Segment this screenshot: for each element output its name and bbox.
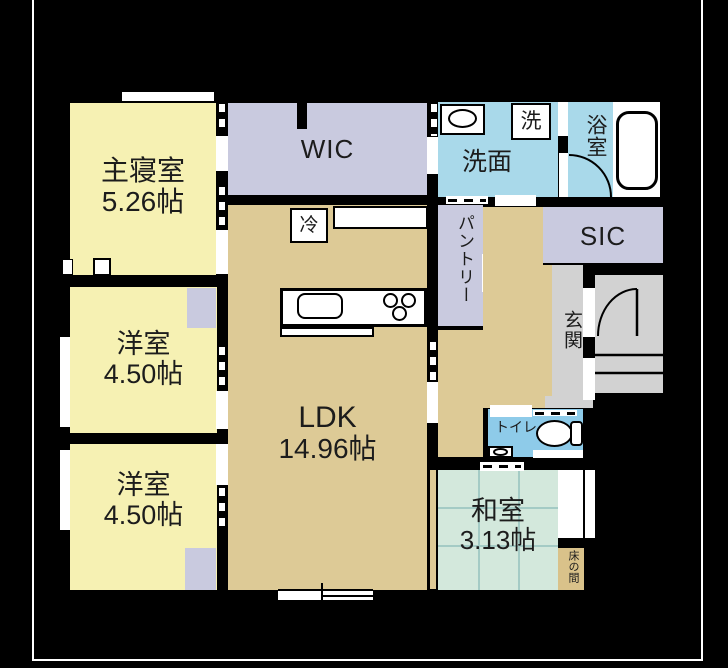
toilet-bowl xyxy=(536,420,573,447)
slide-door-toilet-dashes xyxy=(535,412,575,415)
master-bedroom-size: 5.26帖 xyxy=(70,186,216,217)
tokonoma-label: 床の間 xyxy=(565,550,581,583)
closet-western-1 xyxy=(187,288,216,328)
toilet-label: トイレ xyxy=(495,420,537,436)
door-western-1 xyxy=(216,391,228,429)
room-pantry: パントリー xyxy=(438,205,483,326)
kitchen-sink xyxy=(297,293,343,319)
window-ldk-bottom xyxy=(278,589,373,602)
frame-right-line xyxy=(701,0,703,661)
master-bedroom-name: 主寝室 xyxy=(70,155,216,186)
western-2-name: 洋室 xyxy=(70,470,217,500)
japanese-room-size: 3.13帖 xyxy=(438,526,558,555)
toilet-tank xyxy=(570,421,583,446)
opening-master-wic xyxy=(219,104,225,134)
stove-burner-3 xyxy=(392,306,407,321)
western-1-name: 洋室 xyxy=(70,329,217,359)
opening-western-2 xyxy=(219,488,225,531)
window-master-top xyxy=(120,90,216,103)
bathroom-label: 浴室 xyxy=(580,114,610,158)
washbasin-bowl xyxy=(448,109,477,128)
opening-master-ldk xyxy=(219,187,225,230)
wic-wall-notch xyxy=(297,103,307,129)
slide-door-washitsu-dashes xyxy=(483,465,521,468)
corridor-upper xyxy=(483,207,543,265)
washing-machine: 洗 xyxy=(511,103,551,140)
room-ldk: LDK 14.96帖 xyxy=(228,205,427,590)
master-bedroom-label: 主寝室 5.26帖 xyxy=(70,155,216,218)
japanese-room-name: 和室 xyxy=(438,496,558,526)
wic-name: WIC xyxy=(228,135,427,164)
western-1-size: 4.50帖 xyxy=(70,359,217,389)
door-toilet xyxy=(490,405,532,417)
corridor-mid xyxy=(483,265,552,408)
door-washroom-corridor xyxy=(495,195,536,206)
frame-left-line xyxy=(32,0,34,661)
western-2-size: 4.50帖 xyxy=(70,500,217,530)
window-master-left xyxy=(62,259,73,275)
slide-door-washroom-pantry-dashes xyxy=(448,199,486,202)
room-wic: WIC xyxy=(228,103,427,195)
opening-wic-washroom xyxy=(431,104,437,136)
ldk-size: 14.96帖 xyxy=(228,434,427,465)
wic-label: WIC xyxy=(228,135,427,164)
room-sic: SIC xyxy=(543,207,663,263)
toilet-counter xyxy=(533,450,583,458)
western-2-label: 洋室 4.50帖 xyxy=(70,470,217,530)
entrance-porch xyxy=(595,275,663,393)
washitsu-closet xyxy=(558,470,583,538)
western-1-label: 洋室 4.50帖 xyxy=(70,329,217,389)
entrance-label: 玄関 xyxy=(558,310,585,350)
closet-western-2 xyxy=(185,548,216,590)
wall-ldk-washitsu xyxy=(430,470,436,589)
sic-label: SIC xyxy=(543,222,663,251)
washitsu-side-window xyxy=(585,470,595,538)
room-bathroom: 浴室 xyxy=(568,102,614,197)
window-western-1-left xyxy=(60,337,70,427)
refrigerator: 冷 xyxy=(290,208,328,243)
room-japanese: 和室 3.13帖 xyxy=(438,470,558,590)
washroom-label: 洗面 xyxy=(438,148,536,176)
floor-plan: 主寝室 5.26帖 洋室 4.50帖 洋室 4.50帖 WIC xyxy=(0,0,728,668)
ldk-label: LDK 14.96帖 xyxy=(228,401,427,465)
room-entrance: 玄関 xyxy=(552,265,583,408)
room-master-bedroom: 主寝室 5.26帖 xyxy=(70,103,216,275)
ldk-name: LDK xyxy=(228,401,427,434)
entrance-door-jamb-lower xyxy=(583,358,595,400)
stove-burner-2 xyxy=(401,293,416,308)
door-master-wic xyxy=(216,136,228,171)
door-master-ldk xyxy=(216,230,228,274)
refrigerator-label: 冷 xyxy=(292,215,326,236)
window-master-bottom xyxy=(93,258,111,276)
entrance-door-jamb-upper xyxy=(583,288,595,337)
bathtub xyxy=(616,111,658,190)
corridor-lower xyxy=(438,330,483,457)
ldk-top-cabinet xyxy=(333,206,428,229)
room-tokonoma: 床の間 xyxy=(558,548,584,590)
japanese-room-label: 和室 3.13帖 xyxy=(438,496,558,555)
kitchen-counter-front xyxy=(280,327,374,337)
toilet-sink-bowl xyxy=(493,448,508,456)
frame-bottom-line xyxy=(32,659,703,661)
washing-machine-label: 洗 xyxy=(513,110,549,134)
opening-ldk-corridor xyxy=(430,342,436,381)
window-western-2-left xyxy=(60,450,70,530)
opening-western-1 xyxy=(219,347,225,388)
pantry-label: パントリー xyxy=(452,214,477,304)
door-western-2 xyxy=(216,444,228,485)
